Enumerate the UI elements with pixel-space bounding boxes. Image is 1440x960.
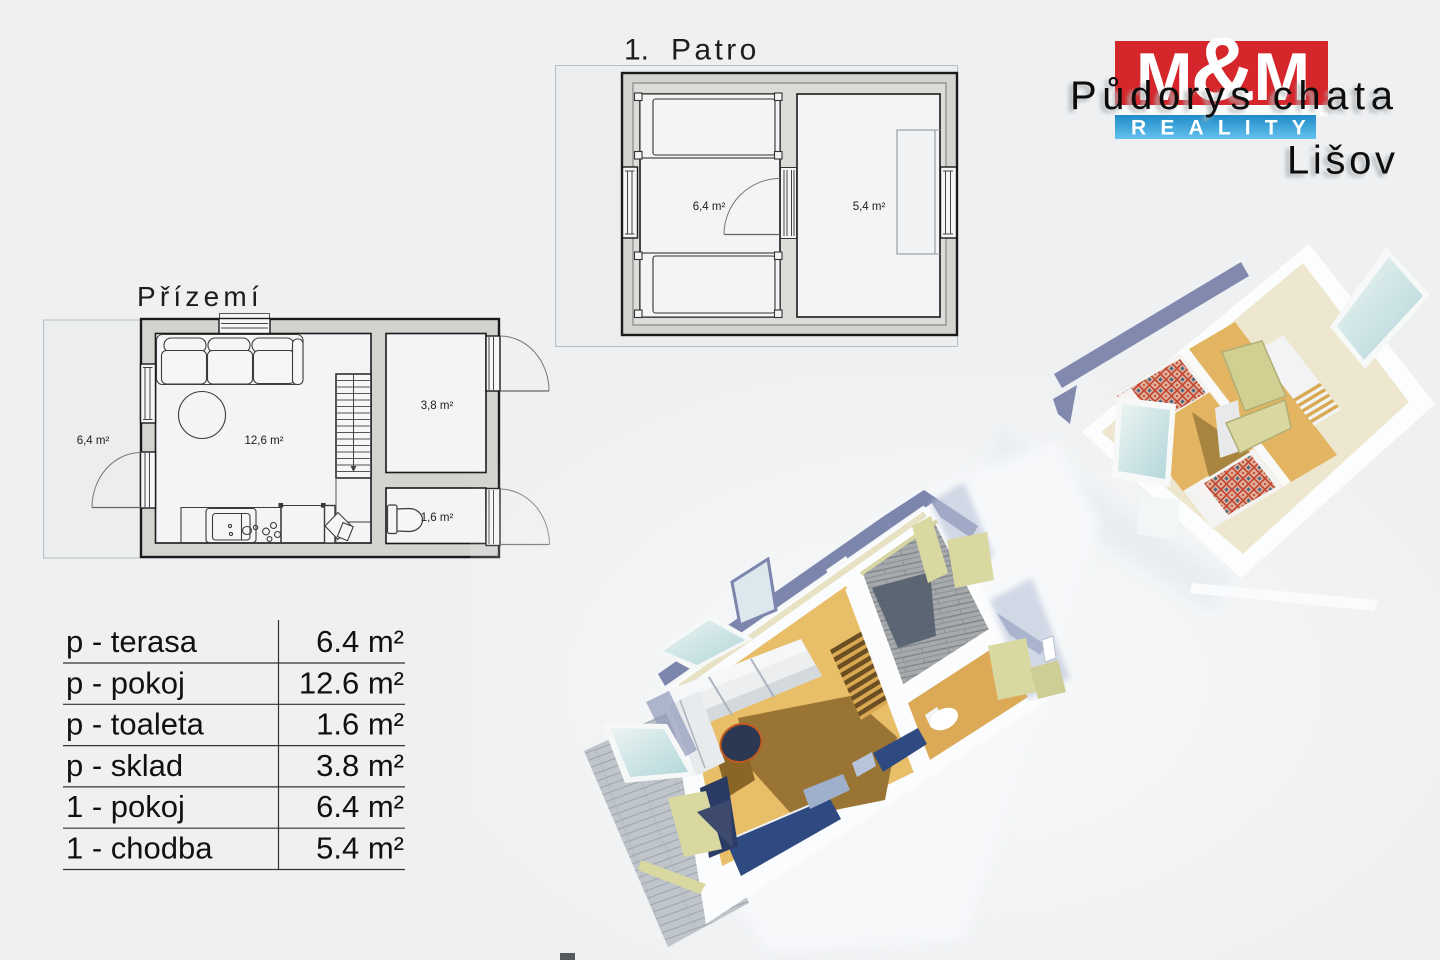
svg-text:1,6 m²: 1,6 m²	[421, 512, 454, 524]
svg-text:1 - chodba: 1 - chodba	[66, 831, 213, 866]
svg-text:6.4 m²: 6.4 m²	[316, 624, 404, 659]
svg-text:5.4 m²: 5.4 m²	[316, 831, 404, 866]
svg-text:Lišov: Lišov	[1287, 139, 1395, 183]
svg-text:p - sklad: p - sklad	[66, 748, 183, 783]
svg-text:6,4 m²: 6,4 m²	[77, 435, 110, 447]
svg-text:Přízemí: Přízemí	[137, 281, 263, 312]
svg-text:6,4 m²: 6,4 m²	[693, 201, 726, 213]
svg-text:3.8 m²: 3.8 m²	[316, 748, 404, 783]
svg-text:p - pokoj: p - pokoj	[66, 665, 185, 700]
svg-text:Patro: Patro	[671, 34, 760, 67]
svg-text:3,8 m²: 3,8 m²	[421, 400, 454, 412]
svg-text:12,6 m²: 12,6 m²	[245, 435, 284, 447]
svg-text:5,4 m²: 5,4 m²	[853, 201, 886, 213]
svg-text:p - terasa: p - terasa	[66, 624, 198, 659]
svg-text:6.4 m²: 6.4 m²	[316, 789, 404, 824]
svg-text:1.6 m²: 1.6 m²	[316, 707, 404, 742]
svg-text:p - toaleta: p - toaleta	[66, 707, 205, 742]
svg-text:Půdorys chata: Půdorys chata	[1070, 74, 1394, 118]
svg-text:1.: 1.	[624, 34, 649, 67]
svg-text:1 - pokoj: 1 - pokoj	[66, 789, 185, 824]
svg-text:12.6 m²: 12.6 m²	[299, 665, 404, 700]
